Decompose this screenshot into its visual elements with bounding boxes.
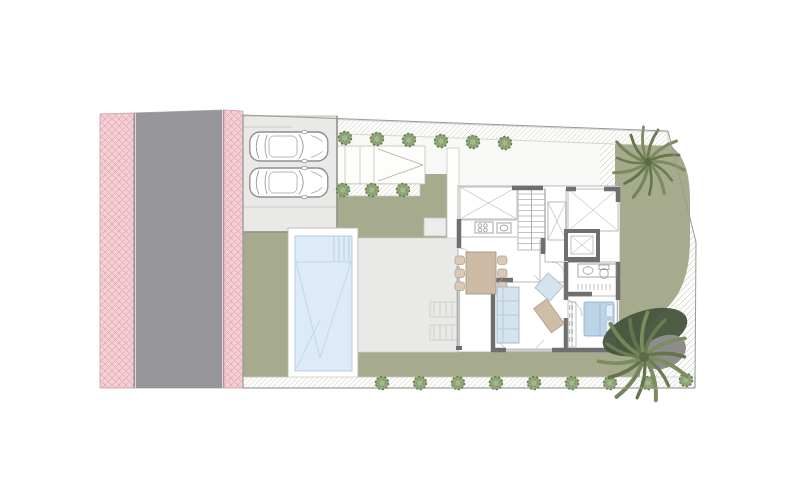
pool-water [295,236,352,371]
elevator-shaft [566,231,598,259]
lawn-bottom-strip [358,352,640,377]
road [134,110,224,388]
sidewalk-left [100,113,134,388]
car-2 [250,166,328,198]
equipment-pad [424,218,446,236]
sidewalk-right [224,110,243,388]
site-plan: Architectural site plan of a villa plot:… [0,0,800,500]
pillow-1 [606,305,613,317]
kitchen-counter [475,222,511,233]
street [100,110,243,388]
parking-area [243,116,337,232]
site-plan-drawing [0,0,800,500]
dining-table [466,252,496,294]
car-1 [250,130,328,162]
swimming-pool [288,228,358,378]
house [455,186,620,352]
